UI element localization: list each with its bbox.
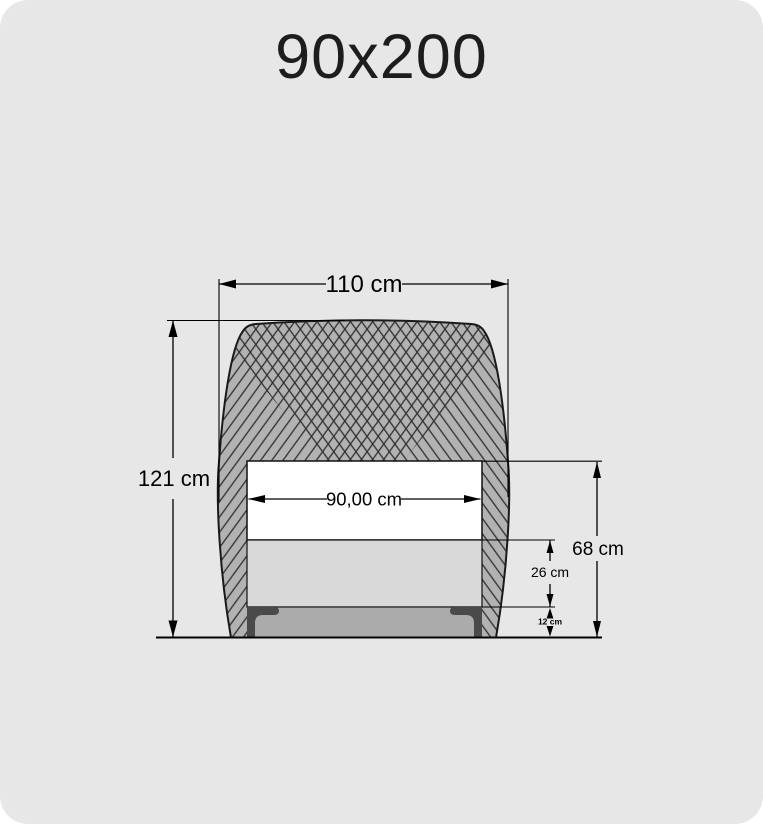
arrow-up-icon	[593, 462, 601, 478]
arrow-down-icon	[547, 594, 554, 607]
bed-front-view	[202, 310, 525, 645]
inner-width-label: 90,00 cm	[326, 489, 402, 510]
arrow-down-icon	[547, 626, 554, 637]
product-dimension-card: 90x200	[0, 0, 763, 824]
arrow-down-icon	[593, 621, 601, 637]
arrow-left-icon	[219, 280, 236, 289]
arrow-down-icon	[169, 621, 178, 638]
dimension-base-height: 12 cm	[538, 608, 563, 637]
bed-dimension-diagram: 110 cm 121 cm 90,00 cm	[0, 0, 763, 824]
base-plinth	[249, 607, 480, 638]
total-height-label: 121 cm	[138, 466, 210, 491]
arrow-right-icon	[491, 280, 508, 289]
outer-width-label: 110 cm	[326, 271, 403, 298]
arrow-up-icon	[169, 321, 178, 338]
arrow-up-icon	[547, 541, 554, 554]
base-height-label: 12 cm	[538, 617, 563, 627]
frame-band-height-label: 26 cm	[531, 564, 569, 580]
top-height-label: 68 cm	[572, 539, 624, 560]
frame-band	[247, 540, 482, 607]
